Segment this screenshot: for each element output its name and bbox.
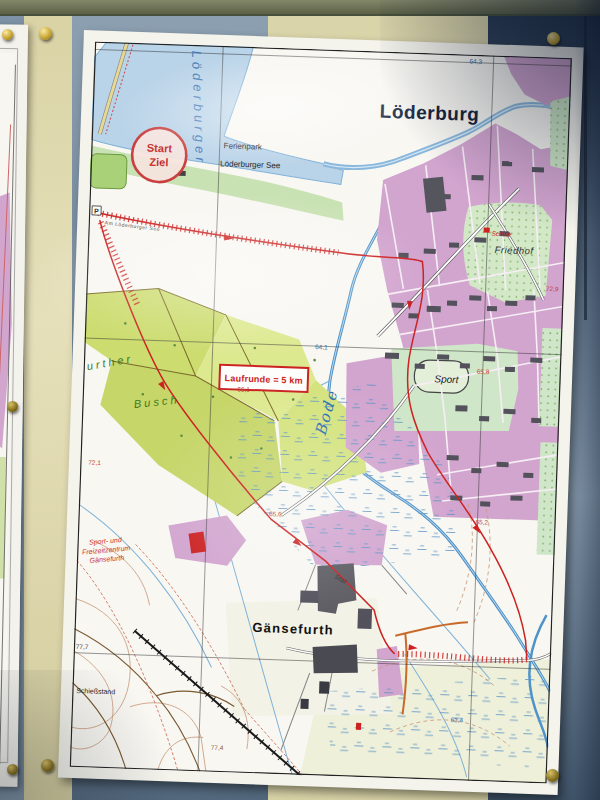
shooting-range-label: Schießstand [76, 687, 115, 695]
push-pin-bottom-right [546, 769, 559, 782]
parking-icon: P [92, 206, 101, 215]
elevation-label: 65,2 [475, 518, 488, 525]
elevation-label: 77,4 [211, 744, 224, 751]
board-top-rail [0, 0, 600, 16]
finish-label: Ziel [149, 156, 168, 169]
elevation-label: 65,8 [477, 368, 490, 375]
push-pin-adjacent-top [2, 29, 13, 40]
elevation-label: 65,6 [269, 510, 282, 517]
start-label: Start [147, 142, 173, 155]
push-pin-top-left [39, 27, 52, 40]
push-pin-adjacent-middle [7, 401, 18, 412]
school-label: Schule [491, 230, 511, 238]
elevation-label: 72,1 [88, 459, 101, 466]
elevation-label: 72,9 [546, 285, 559, 292]
elevation-label: 66,1 [237, 386, 250, 393]
elevation-label: 77,7 [76, 643, 89, 650]
meadow-area [90, 154, 127, 189]
board-seam [584, 0, 587, 320]
cemetery-label: Friedhof [494, 244, 534, 256]
town-title-label: Löderburg [379, 101, 479, 125]
resort-label-line1: Ferienpark [223, 141, 263, 151]
push-pin-top-right [547, 32, 560, 45]
push-pin-bottom-left [41, 759, 54, 772]
map-graphic: Start Ziel P Laufrunde = 5 km Schule Löd… [69, 41, 572, 783]
svg-text:P: P [94, 207, 99, 214]
map-board-photo: Start Ziel P Laufrunde = 5 km Schule Löd… [0, 0, 600, 800]
elevation-label: 64,1 [315, 343, 328, 350]
main-map-sheet: Start Ziel P Laufrunde = 5 km Schule Löd… [58, 30, 584, 795]
elevation-label: 63,4 [450, 716, 463, 723]
elevation-label: 64,3 [469, 58, 482, 65]
route-distance-badge: Laufrunde = 5 km [219, 365, 308, 392]
start-finish-marker: Start Ziel [131, 127, 187, 183]
village-gaensefurth-label: Gänsefurth [252, 620, 334, 638]
leisure-center-building [189, 532, 207, 554]
push-pin-adjacent-bottom [7, 764, 18, 775]
sport-field-label: Sport [434, 373, 460, 385]
